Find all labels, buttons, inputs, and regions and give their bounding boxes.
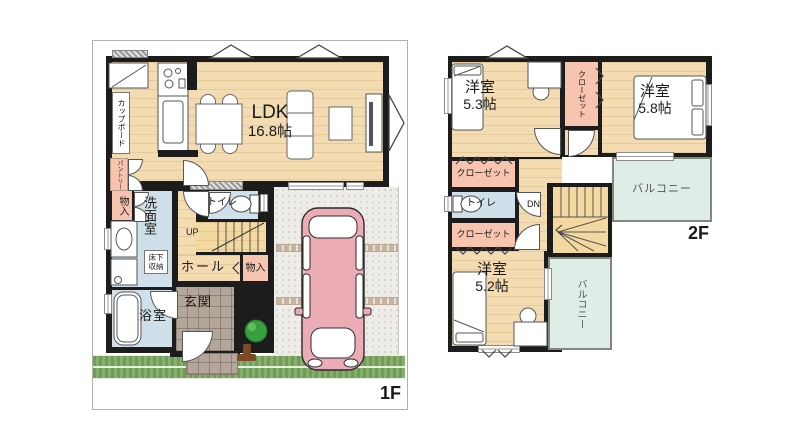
toilet-2f-label: トイレ (466, 198, 496, 209)
room52-name: 洋室 (460, 262, 524, 279)
car-icon (295, 208, 371, 370)
floor1-label: 1F (380, 384, 401, 404)
kitchen-stub-wall (158, 150, 198, 157)
kitchen-unit-icon (158, 63, 188, 152)
floor-plan-canvas: 物入 物入 パントリー カップボード クローゼット クローゼット クローゼット … (0, 0, 800, 435)
washbasin-icon (111, 221, 137, 257)
room58-name: 洋室 (614, 84, 696, 101)
garden-faucet-icon (237, 344, 256, 361)
underfloor-storage-label: 床下収納 (144, 250, 168, 274)
stairs-dn-label: DN (527, 200, 540, 210)
desk-icon-52 (514, 308, 547, 346)
toilet-1f-label: トイレ (207, 197, 237, 208)
ldk-name: LDK (238, 103, 302, 124)
stairs-2f-icon (553, 187, 608, 251)
kitchen-stub-wall (187, 62, 197, 90)
bathtub-icon (114, 292, 141, 345)
roof-window-icon (210, 45, 527, 58)
hall-label: ホール (181, 260, 226, 274)
tree-icon (245, 320, 267, 342)
room53-size: 5.3帖 (450, 97, 510, 112)
plan-lineart (0, 0, 800, 435)
side-table-icon (329, 107, 352, 140)
tv-board-icon (366, 94, 382, 152)
ldk-size: 16.8帖 (238, 124, 302, 141)
room52-label: 洋室 5.2帖 (460, 262, 524, 294)
stairs-1f-icon (212, 222, 264, 252)
arrow-icon (233, 262, 239, 274)
washing-machine-icon (111, 259, 137, 285)
room53-name: 洋室 (450, 80, 510, 97)
room58-size: 5.8帖 (614, 101, 696, 116)
dining-set-icon (196, 95, 242, 154)
entrance-label: 玄関 (184, 295, 212, 309)
desk-icon-53 (528, 62, 561, 100)
room58-label: 洋室 5.8帖 (614, 84, 696, 116)
cupboard-icon (109, 63, 148, 88)
bathroom-label: 浴室 (139, 309, 167, 323)
room52-size: 5.2帖 (460, 279, 524, 294)
bay-window-icon (389, 95, 404, 151)
room53-label: 洋室 5.3帖 (450, 80, 510, 112)
stairs-up-label: UP (186, 228, 199, 238)
floor2-label: 2F (688, 224, 709, 244)
washroom-label: 洗面室 (143, 196, 156, 235)
ldk-label: LDK 16.8帖 (238, 103, 302, 140)
